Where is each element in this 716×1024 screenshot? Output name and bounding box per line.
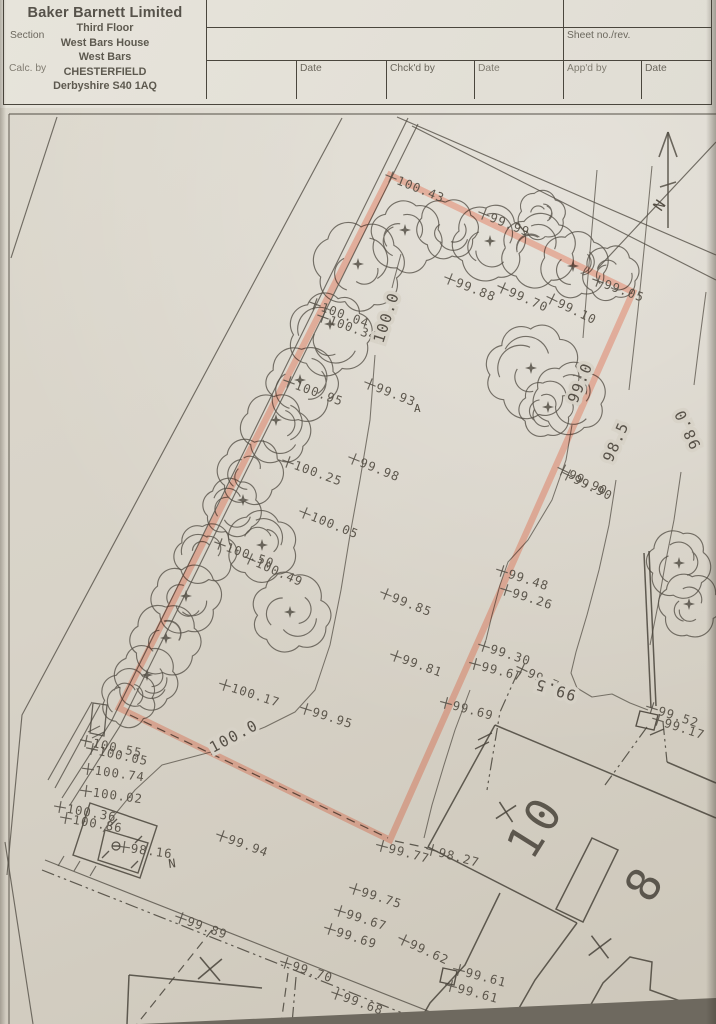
title-block-border: Baker Barnett Limited Third Floor West B… [3, 0, 712, 105]
spot-level: 99.85 [378, 586, 434, 620]
site-plan-drawing: 100.4399.9999.0599.8899.7099.10100.04100… [0, 0, 716, 1024]
field-date: Date [645, 63, 667, 74]
road-line [11, 117, 57, 258]
table-rule [207, 27, 711, 28]
spot-level-value: 99.81 [400, 652, 444, 680]
contour-label: 100.0 [370, 290, 403, 346]
spot-level-value: 100.74 [94, 764, 146, 785]
spot-level-value: 100.25 [292, 458, 344, 488]
scan-edge-shadow [706, 0, 716, 1024]
spot-level: 98.27 [424, 842, 481, 870]
x-mark-stroke [589, 936, 612, 959]
spot-level: 100.95 [281, 374, 345, 409]
tree-trunk-star-icon [352, 258, 364, 270]
spot-levels-layer: 100.4399.9999.0599.8899.7099.10100.04100… [53, 169, 707, 1018]
field-calc-by: Calc. by [9, 63, 46, 74]
spot-level: 99.75 [347, 881, 404, 911]
spot-level: 99.10 [543, 291, 599, 328]
table-rule [641, 60, 642, 99]
building-outline [556, 838, 618, 922]
spot-level-value: 99.70 [290, 959, 334, 985]
north-arrow-head [659, 132, 668, 157]
spot-level: 99.94 [214, 828, 271, 860]
plot-number: 10 [496, 785, 575, 867]
spot-level-value: 100.49 [253, 556, 305, 589]
field-date: Date [300, 63, 322, 74]
tree-trunk-star-icon [399, 224, 411, 236]
spot-level: 100.25 [280, 454, 344, 489]
spot-level: 98.16 [117, 840, 173, 862]
spot-level: 99.98 [346, 451, 402, 485]
table-rule [207, 60, 711, 61]
level-cross-icon [549, 294, 554, 305]
spot-level: 99.93 [362, 376, 418, 410]
tree-canopy-icon [519, 381, 573, 436]
spot-level: 100.05 [297, 505, 361, 542]
contour-line [392, 254, 401, 288]
survey-tick [74, 861, 80, 871]
level-cross-icon [401, 935, 406, 946]
company-name: Baker Barnett Limited [4, 5, 206, 21]
company-address-line: Derbyshire S40 1AQ [4, 79, 206, 94]
x-mark-icon [198, 957, 222, 981]
contour-label: 98.0 [671, 406, 705, 452]
table-rule [563, 60, 564, 99]
contour-label: 100.0 [206, 716, 261, 757]
spot-level: 100.02 [79, 784, 144, 807]
table-rule [563, 0, 564, 60]
site-boundary-line [119, 175, 633, 840]
spot-level: 100.43 [383, 169, 447, 206]
spot-level-value: 99.26 [510, 586, 554, 612]
tree-trunk-star-icon [484, 235, 496, 247]
spot-level-value: 99.69 [451, 699, 495, 723]
plan-annotation: A [414, 402, 421, 415]
survey-tick [102, 851, 109, 858]
x-mark-icon [589, 936, 612, 959]
plot-number: 8 [614, 855, 677, 911]
spot-level-value: 99.85 [390, 591, 434, 620]
tree-canopies [102, 190, 716, 727]
table-rule [474, 60, 475, 99]
plot-line [127, 975, 129, 1024]
tree-canopy-icon [417, 200, 479, 259]
spot-level-value: 99.77 [387, 842, 431, 866]
survey-tick [90, 866, 96, 876]
field-date: Date [478, 63, 500, 74]
level-cross-icon [123, 841, 125, 853]
table-rule [296, 60, 297, 99]
tree-trunk-star-icon [237, 494, 249, 506]
spot-level-value: 99.10 [555, 296, 599, 327]
plot-line [495, 725, 645, 788]
tree-trunk-star-icon [284, 606, 296, 618]
spot-level-value: 99.93 [374, 381, 418, 410]
chain-boundary [605, 727, 647, 785]
spot-level: 100.17 [217, 677, 282, 710]
field-section: Section [10, 30, 44, 41]
site-boundary-highlight [119, 175, 633, 840]
survey-tick [131, 861, 138, 868]
plot-line [129, 975, 262, 988]
spot-level-value: 99.94 [226, 832, 270, 860]
spot-level-value: 98.27 [437, 846, 481, 870]
spot-level-value: 100.95 [293, 378, 345, 408]
spot-level-value: 99.70 [506, 285, 550, 315]
plan-annotation: N [167, 856, 176, 871]
road-lines [7, 117, 716, 1024]
north-arrow-head [668, 132, 677, 157]
contour-line [571, 480, 648, 710]
tree-canopy-icon [371, 201, 442, 273]
level-cross-icon [85, 785, 87, 797]
spot-level: 99.95 [298, 701, 355, 731]
spot-level-value: 99.95 [310, 705, 354, 731]
spot-level: 99.81 [388, 648, 445, 680]
scan-edge-shadow [0, 0, 6, 1024]
spot-level-value: 100.05 [309, 510, 361, 542]
spot-level-value: 99.89 [185, 914, 229, 942]
plan-annotation: N [650, 197, 670, 215]
spot-level: 99.62 [395, 932, 451, 968]
company-address-block: Baker Barnett Limited Third Floor West B… [4, 0, 207, 99]
table-rule [386, 60, 387, 99]
scanned-site-plan: Baker Barnett Limited Third Floor West B… [0, 0, 716, 1024]
spot-level-value: 100.17 [229, 681, 281, 710]
field-appd-by: App'd by [567, 63, 607, 74]
tree-trunk-star-icon [673, 557, 685, 569]
tree-trunk-star-icon [525, 362, 537, 374]
spot-level-value: 99.62 [407, 937, 451, 967]
contour-label: 98.5 [599, 419, 633, 465]
tree-trunk-star-icon [256, 539, 268, 551]
level-cross-icon [87, 763, 89, 775]
contour-line [694, 292, 706, 385]
x-mark-stroke [198, 957, 222, 981]
spot-level-value: 99.75 [359, 885, 403, 911]
survey-tick [478, 733, 492, 740]
dashed-boundary [281, 973, 288, 1024]
field-sheet-no: Sheet no./rev. [567, 30, 630, 41]
spot-level: 99.70 [494, 280, 550, 315]
photo-edge-shadow [140, 998, 716, 1024]
plot-numbers-layer: 108 [496, 785, 677, 910]
chain-boundary [292, 977, 296, 1024]
level-cross-icon [501, 283, 506, 294]
road-line [45, 860, 461, 1024]
field-chckd-by: Chck'd by [390, 63, 435, 74]
spot-level-value: 99.98 [358, 456, 402, 485]
tree-trunk-star-icon [542, 401, 554, 413]
tree-trunk-star-icon [683, 598, 695, 610]
title-block: Baker Barnett Limited Third Floor West B… [0, 0, 716, 108]
survey-tick [58, 856, 64, 866]
